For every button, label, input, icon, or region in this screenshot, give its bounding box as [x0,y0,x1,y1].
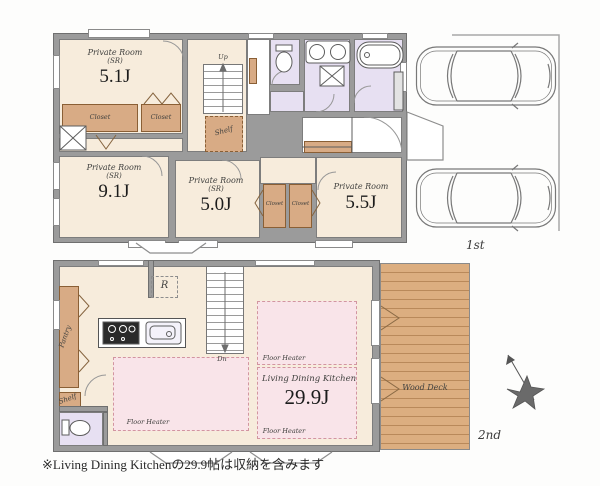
window [362,33,388,39]
bathroom [354,39,403,112]
bay-window [88,29,150,38]
hall-strip [59,138,183,152]
entrance-porch [407,112,443,160]
wood-deck [380,263,470,450]
corridor-shelf [249,58,257,84]
ldk-name: Living Dining Kitchen [262,375,352,384]
stairs-1f [203,64,243,114]
room-size: 5.5J [318,192,404,214]
window [53,55,60,89]
floor-heater-label: Floor Heater [254,355,314,362]
floor1-tag: 1st [466,238,485,252]
room-name: Private Room [173,176,259,185]
wall [103,412,108,446]
deck-window [371,300,380,346]
room-label-5-5j: Private Room 5.5J [318,182,404,214]
window [400,62,407,92]
floor-heater-label: Floor Heater [254,428,314,435]
car-icon [417,43,556,109]
hall-2 [260,157,316,184]
window [255,260,315,266]
washroom [304,39,350,112]
room-name: Private Room [70,48,160,57]
toilet-room-1f [270,39,300,85]
room-label-9-1j: Private Room (SR) 9.1J [69,163,159,203]
parking-fence [452,35,559,231]
shoe-cabinet [304,141,352,153]
wood-deck-label: Wood Deck [390,384,460,393]
closet-label: Closet [263,201,286,207]
floor2-tag: 2nd [478,428,501,442]
window [53,162,60,190]
room-size: 9.1J [69,181,159,203]
window [178,240,218,248]
room-size: 5.1J [70,66,160,88]
up-label: Up [213,54,233,61]
window [98,260,144,266]
room-name: Private Room [69,163,159,172]
kitchen-island [98,318,186,348]
room-sub: (SR) [70,57,160,65]
deck-window [371,358,380,404]
room-name: Private Room [318,182,404,191]
room-sub: (SR) [173,185,259,193]
toilet-room-2f [59,412,103,446]
window [53,198,60,226]
down-label: Dn [210,356,234,363]
footnote: ※Living Dining Kitchenの29.9帖は収納を含みます [42,454,324,473]
window [53,300,60,330]
ldk-size: 29.9J [262,386,352,409]
room-size: 5.0J [173,194,259,216]
floor-plan: Private Room (SR) 5.1J Private Room (SR)… [0,0,600,486]
stairs-2f [206,266,244,354]
window [128,240,166,248]
room-sub: (SR) [69,172,159,180]
refrigerator-label: R [151,280,178,291]
room-label-5-0j: Private Room (SR) 5.0J [173,176,259,216]
car-icon [417,165,556,231]
floor-heater-label: Floor Heater [118,419,178,426]
compass-icon [506,355,544,409]
washroom-lower [270,91,304,112]
closet-label: Closet [289,201,312,207]
room-label-5-1j: Private Room (SR) 5.1J [70,48,160,88]
window [315,240,353,248]
window [248,33,274,39]
closet-label: Closet [78,114,122,121]
closet-label: Closet [143,114,179,121]
